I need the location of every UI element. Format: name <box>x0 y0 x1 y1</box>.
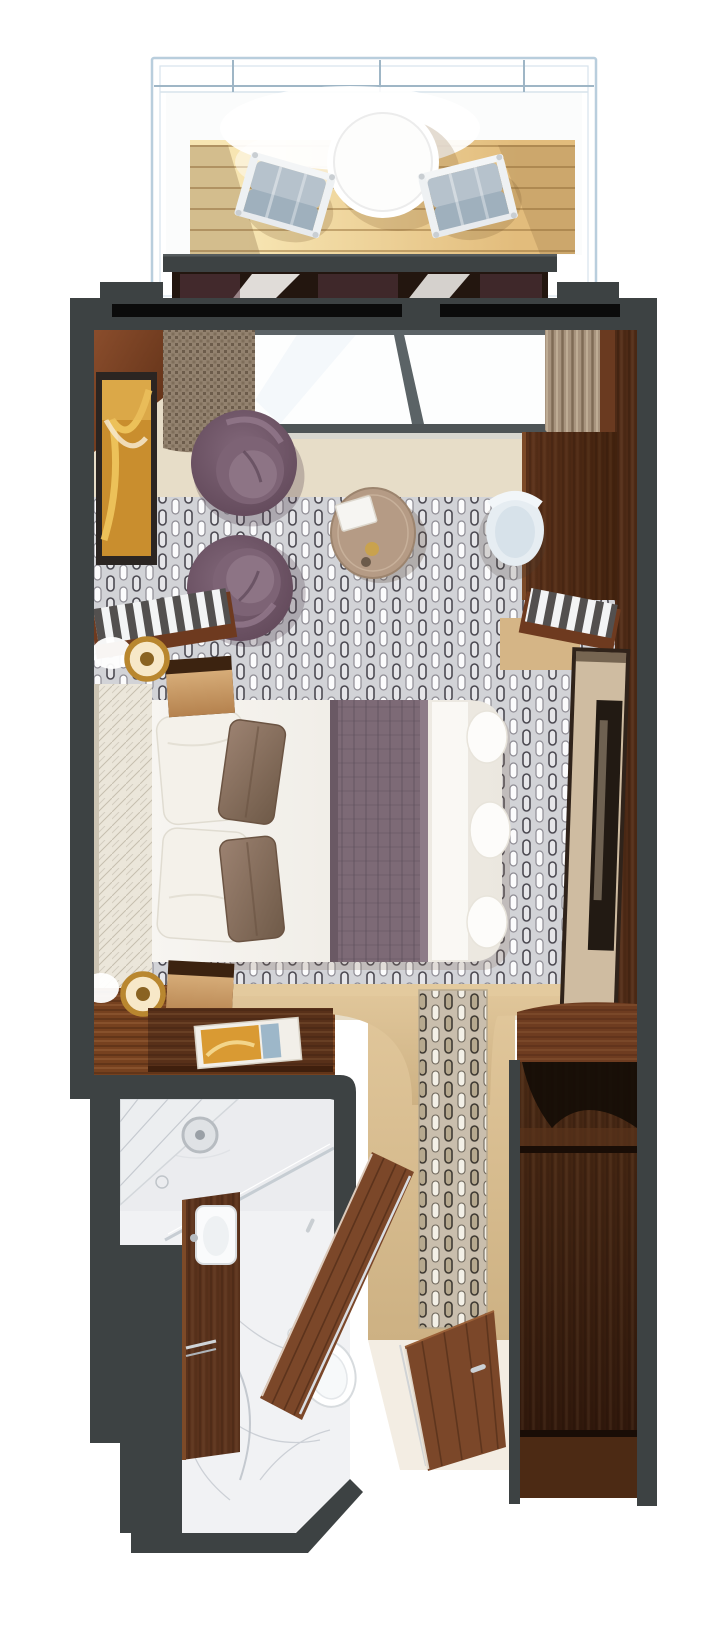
double-bed <box>152 700 510 970</box>
sink-basin <box>203 1216 229 1256</box>
floorplan-stage <box>0 0 726 1630</box>
bathroom-top-wall <box>70 1075 312 1099</box>
left-wall <box>70 298 94 1098</box>
vanity-desk <box>148 1008 333 1072</box>
tan-threshold-highlight <box>228 984 562 996</box>
right-wall <box>637 298 657 1506</box>
stateroom-floorplan <box>0 0 726 1630</box>
closet <box>509 1060 637 1504</box>
wall-edge-highlight <box>163 254 557 257</box>
upper-shelf-edge <box>520 1146 637 1153</box>
lower-shelf <box>520 1437 637 1498</box>
window-sill <box>240 424 560 433</box>
bed-runner-plaid <box>330 700 428 962</box>
wall-artwork <box>96 372 157 565</box>
headboard-quilting <box>94 684 152 988</box>
patterned-runner <box>419 990 487 1328</box>
lower-shelf-edge <box>520 1430 637 1437</box>
sliding-door-glass-glints <box>180 274 542 302</box>
duvet-tuck-1 <box>467 711 507 763</box>
bathroom <box>70 1075 414 1553</box>
bathroom-left-wall <box>90 1099 120 1443</box>
headboard-edge <box>94 684 99 988</box>
entry-wood-wedge-grain <box>517 1002 637 1062</box>
round-table-top <box>334 113 432 211</box>
wood-wall-right <box>600 330 615 448</box>
wall-cavity-right <box>440 304 620 317</box>
nightstand-upper <box>165 656 235 717</box>
wall-cavity-left <box>112 304 402 317</box>
faucet <box>190 1234 198 1242</box>
window-head <box>255 330 545 335</box>
runner-edge-dark <box>330 700 338 962</box>
pillow-accent-lower <box>219 835 285 942</box>
closet-partition-wall <box>509 1060 520 1504</box>
upper-shelf <box>520 1128 637 1146</box>
runner-edge-light <box>420 700 428 962</box>
duvet-fold-band <box>432 702 468 960</box>
balcony-bulkhead <box>163 254 557 272</box>
bathroom-lower-block <box>131 1443 182 1535</box>
duvet-tuck-2 <box>470 802 510 858</box>
art-book <box>194 1018 301 1069</box>
duvet-tuck-3 <box>467 896 507 948</box>
vanity-counter <box>182 1192 240 1460</box>
shower-head-center <box>195 1130 205 1140</box>
